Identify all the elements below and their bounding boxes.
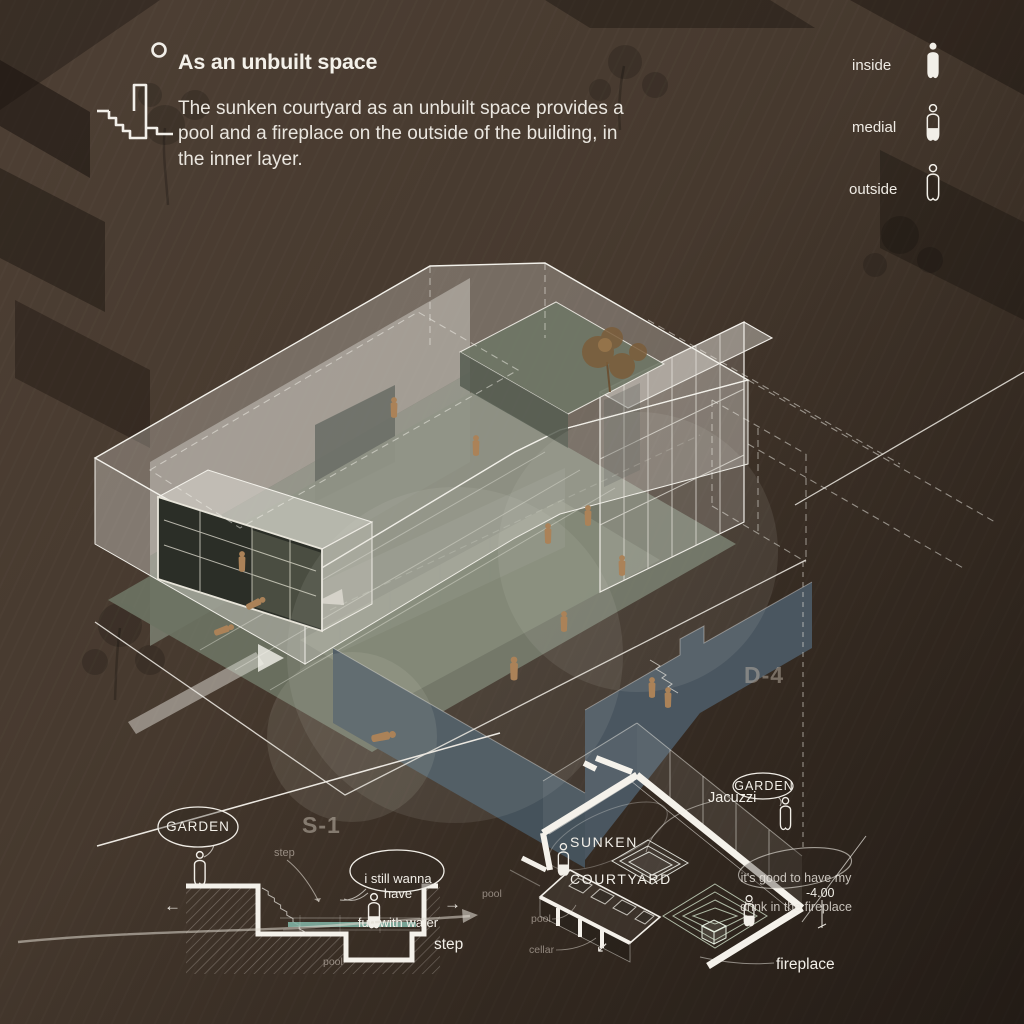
plan-title-line1: SUNKEN	[570, 833, 672, 851]
fireplace-label: fireplace	[776, 956, 835, 974]
poster-canvas: As an unbuilt space The sunken courtyard…	[0, 0, 1024, 1024]
step-label-right: step	[434, 936, 463, 954]
pool-label-bottom: pool	[323, 956, 343, 968]
direction-arrow-right: →	[444, 894, 461, 914]
plan-title-line2: COURTYARD	[570, 870, 672, 888]
level-label: -4.00	[806, 886, 835, 900]
direction-arrow-southwest: ↙	[596, 938, 609, 956]
pool-label-right: pool	[482, 888, 502, 900]
garden-label-plan: GARDEN	[733, 779, 795, 793]
page-description: The sunken courtyard as an unbuilt space…	[178, 96, 630, 172]
cellar-label: cellar	[529, 944, 554, 956]
speech-bubble2-line1: it's good to have my	[740, 871, 852, 886]
legend-label-medial: medial	[852, 119, 896, 136]
person-medial-icon	[924, 104, 942, 144]
speech-bubble2-line2: drink in the fireplace	[740, 900, 852, 915]
legend-label-inside: inside	[852, 57, 891, 74]
person-outside-icon	[924, 164, 942, 204]
pool-label-plan: pool	[531, 913, 551, 925]
speech-bubble-line1: i still wanna have	[350, 872, 446, 902]
sunken-courtyard-section-icon	[95, 38, 187, 142]
garden-label-section: GARDEN	[158, 819, 238, 834]
speech-bubble-line2: fun with water	[350, 916, 446, 931]
legend-label-outside: outside	[849, 181, 897, 198]
section-marker-label: S-1	[302, 812, 341, 839]
page-title: As an unbuilt space	[178, 50, 377, 75]
detail-marker-label: D-4	[744, 662, 784, 689]
step-label-top: step	[274, 847, 295, 859]
direction-arrow-left: ←	[164, 896, 181, 916]
person-inside-icon	[924, 42, 942, 82]
